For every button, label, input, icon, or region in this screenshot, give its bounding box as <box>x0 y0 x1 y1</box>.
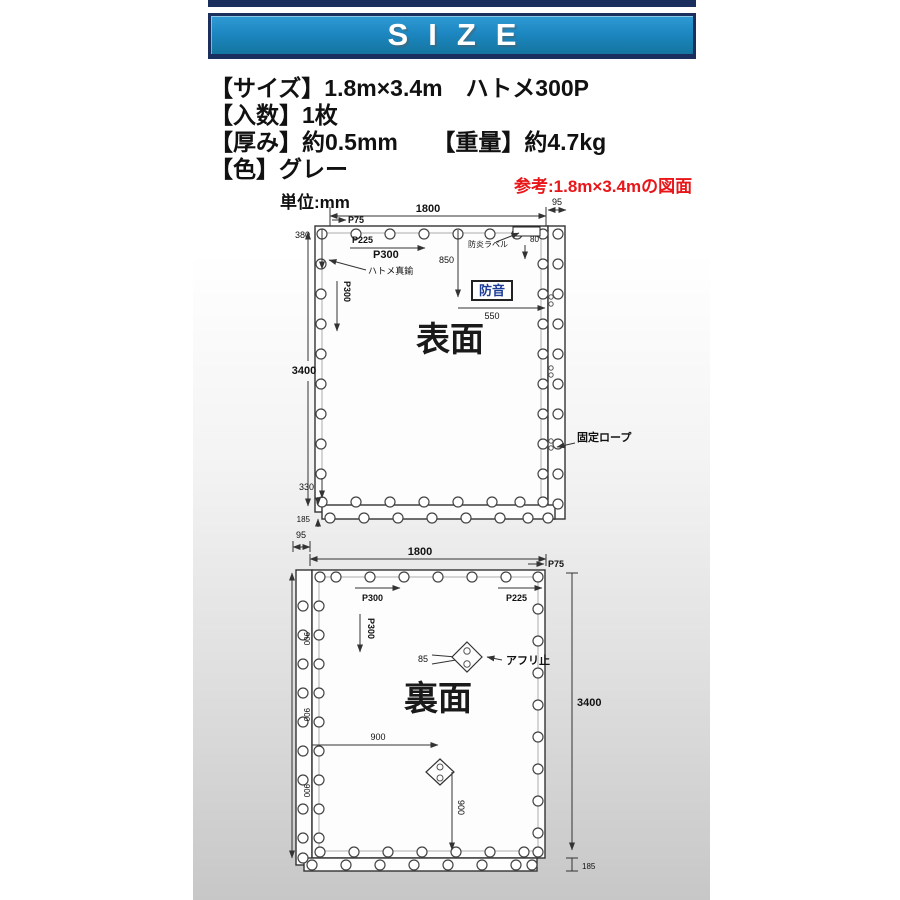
back-label-stopper: アフリ止 <box>506 653 550 667</box>
grommet <box>533 700 543 710</box>
grommet <box>314 833 324 843</box>
grommet <box>538 349 548 359</box>
front-dim-label-width: 550 <box>484 311 499 321</box>
grommet <box>315 572 325 582</box>
grommet <box>419 229 429 239</box>
grommet <box>427 513 437 523</box>
grommet <box>359 513 369 523</box>
back-pitch-p300-vertical: P300 <box>366 618 376 639</box>
grommet <box>538 497 548 507</box>
grommet <box>385 497 395 507</box>
front-pitch-p300: P300 <box>373 249 399 261</box>
grommet <box>314 601 324 611</box>
grommet <box>375 860 385 870</box>
grommet <box>533 796 543 806</box>
grommet <box>298 659 308 669</box>
grommet <box>533 636 543 646</box>
front-pitch-p300-vertical: P300 <box>342 281 352 302</box>
grommet <box>316 409 326 419</box>
grommet <box>314 746 324 756</box>
grommet <box>485 847 495 857</box>
grommet <box>298 804 308 814</box>
front-label-soundproof: 防音 <box>479 283 505 298</box>
grommet <box>316 289 326 299</box>
back-dim-hem-bottom: 185 <box>582 862 596 871</box>
front-diagram: 1800 95 P75 380 3400 P225 P300 ハトメ真鍮 P30… <box>280 193 710 538</box>
grommet <box>533 604 543 614</box>
front-dim-label-offset: 80 <box>530 235 539 244</box>
grommet <box>477 860 487 870</box>
grommet <box>419 497 429 507</box>
front-dim-label-drop: 850 <box>439 255 454 265</box>
grommet <box>349 847 359 857</box>
size-banner-title: SIZE <box>368 17 537 53</box>
grommet <box>314 630 324 640</box>
back-dim-900-horizontal: 900 <box>370 732 385 742</box>
grommet <box>533 764 543 774</box>
product-size-sheet: SIZE 【サイズ】1.8m×3.4m ハトメ300P 【入数】1枚 【厚み】約… <box>0 0 900 900</box>
grommet <box>316 439 326 449</box>
front-dim-hem: 95 <box>552 197 562 207</box>
grommet <box>543 513 553 523</box>
grommet <box>538 319 548 329</box>
front-dim-hem-bottom: 185 <box>297 515 311 524</box>
grommet <box>433 572 443 582</box>
grommet <box>549 295 553 299</box>
grommet <box>351 497 361 507</box>
grommet <box>549 446 553 450</box>
back-dim-85: 85 <box>418 654 428 664</box>
grommet <box>523 513 533 523</box>
grommet <box>538 289 548 299</box>
grommet <box>519 847 529 857</box>
back-dim-width: 1800 <box>408 546 432 558</box>
back-bottom-hem <box>304 858 537 871</box>
grommet <box>501 572 511 582</box>
back-pitch-p300: P300 <box>362 593 383 603</box>
size-banner: SIZE <box>208 13 696 59</box>
back-dim-height: 3400 <box>577 697 601 709</box>
previous-section-border <box>208 0 696 7</box>
front-label-rope: 固定ロープ <box>577 430 632 444</box>
grommet <box>316 349 326 359</box>
grommet <box>298 746 308 756</box>
grommet <box>553 409 563 419</box>
spec-quantity: 【入数】1枚 <box>210 102 338 128</box>
grommet <box>325 513 335 523</box>
front-label-grommet: ハトメ真鍮 <box>368 265 413 276</box>
grommet <box>298 601 308 611</box>
grommet <box>549 373 553 377</box>
grommet <box>549 366 553 370</box>
grommet <box>527 860 537 870</box>
grommet <box>314 775 324 785</box>
grommet <box>467 572 477 582</box>
grommet <box>553 349 563 359</box>
grommet <box>399 572 409 582</box>
grommet <box>314 659 324 669</box>
grommet <box>314 804 324 814</box>
grommet <box>298 833 308 843</box>
grommet <box>341 860 351 870</box>
grommet <box>417 847 427 857</box>
grommet <box>383 847 393 857</box>
grommet <box>553 499 563 509</box>
back-pitch-p225: P225 <box>506 593 527 603</box>
back-pitch-p75: P75 <box>548 559 564 569</box>
grommet <box>533 847 543 857</box>
grommet <box>316 469 326 479</box>
grommet <box>533 668 543 678</box>
back-left-segment-1: 900 <box>302 632 311 646</box>
grommet <box>316 319 326 329</box>
grommet <box>316 259 326 269</box>
back-dim-hem: 95 <box>296 530 306 540</box>
grommet <box>365 572 375 582</box>
spec-size: 【サイズ】1.8m×3.4m ハトメ300P <box>210 75 589 101</box>
front-dim-height: 3400 <box>292 365 316 377</box>
grommet <box>385 229 395 239</box>
front-sheet-outline <box>315 226 548 512</box>
grommet <box>538 439 548 449</box>
grommet <box>533 572 543 582</box>
grommet <box>307 860 317 870</box>
front-pitch-p225: P225 <box>352 235 373 245</box>
grommet <box>314 688 324 698</box>
grommet <box>485 229 495 239</box>
grommet <box>553 319 563 329</box>
grommet <box>549 302 553 306</box>
grommet <box>553 229 563 239</box>
spec-color: 【色】グレー <box>210 156 348 182</box>
grommet <box>298 853 308 863</box>
back-dim-900-vertical: 900 <box>456 800 466 815</box>
grommet <box>553 469 563 479</box>
grommet <box>461 513 471 523</box>
grommet <box>487 497 497 507</box>
grommet <box>511 860 521 870</box>
grommet <box>515 497 525 507</box>
grommet <box>538 379 548 389</box>
grommet <box>393 513 403 523</box>
front-title: 表面 <box>416 321 484 359</box>
grommet <box>495 513 505 523</box>
front-pitch-p75: P75 <box>348 215 364 225</box>
grommet <box>538 469 548 479</box>
grommet <box>538 259 548 269</box>
grommet <box>553 289 563 299</box>
grommet <box>453 497 463 507</box>
grommet <box>316 379 326 389</box>
back-title: 裏面 <box>404 680 472 718</box>
grommet <box>553 259 563 269</box>
grommet <box>538 409 548 419</box>
grommet <box>315 847 325 857</box>
grommet <box>533 732 543 742</box>
back-left-segment-2: 900 <box>302 708 311 722</box>
front-dim-width: 1800 <box>416 203 440 215</box>
front-label-flame: 防炎ラベル <box>468 239 508 249</box>
grommet <box>443 860 453 870</box>
grommet <box>549 439 553 443</box>
grommet <box>553 379 563 389</box>
grommet <box>314 717 324 727</box>
grommet <box>553 439 563 449</box>
grommet <box>298 688 308 698</box>
grommet <box>533 828 543 838</box>
back-left-segment-3: 900 <box>302 784 311 798</box>
spec-thickness-weight: 【厚み】約0.5mm 【重量】約4.7kg <box>210 129 606 155</box>
front-dim-bottom-offset: 330 <box>299 482 314 492</box>
back-diagram: 95 1800 P75 3400 185 900 900 900 P300 P2… <box>280 528 710 888</box>
grommet <box>331 572 341 582</box>
grommet <box>409 860 419 870</box>
